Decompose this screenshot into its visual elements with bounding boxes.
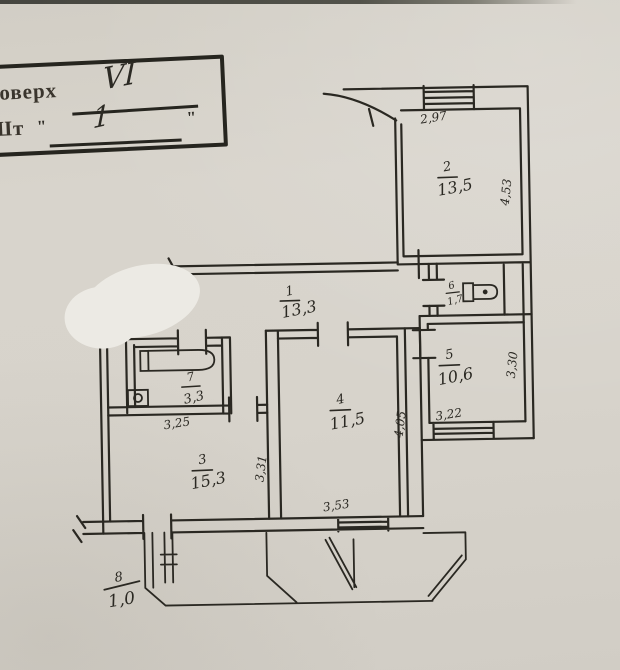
room-label-room2: 2 13,5: [432, 156, 474, 200]
svg-text:15,3: 15,3: [189, 468, 228, 493]
scanned-floor-plan-page: оверх VI Шт " 1 ": [0, 0, 620, 670]
svg-text:2: 2: [441, 159, 453, 175]
dim-room3-right: 3,31: [252, 455, 269, 483]
room-label-bathroom: 7 3,3: [177, 368, 205, 408]
dim-room3-top: 3,25: [162, 414, 191, 432]
svg-text:1: 1: [284, 283, 295, 299]
dimension-labels: 2,97 4,53 3,22 3,30 3,53 4,05 3,25 3,31: [157, 107, 523, 517]
sink-icon: [128, 390, 148, 406]
room-label-wc: 6 1,7: [442, 279, 465, 308]
floor-plan-svg: 1 13,3 2 13,5 3 15,3 4 11,5: [0, 0, 620, 670]
room-label-room3: 3 15,3: [185, 449, 227, 493]
svg-text:4: 4: [334, 392, 346, 408]
svg-text:5: 5: [444, 347, 455, 363]
balcony-structures: [144, 527, 466, 606]
svg-text:10,6: 10,6: [436, 364, 475, 389]
svg-text:3: 3: [197, 452, 208, 468]
svg-text:7: 7: [185, 369, 196, 384]
dim-room5-right: 3,30: [504, 351, 521, 379]
toilet-icon: [463, 283, 497, 302]
room-label-room5: 5 10,6: [432, 344, 474, 389]
svg-text:6: 6: [447, 280, 457, 292]
room-label-corridor: 1 13,3: [276, 280, 318, 322]
balcony-curve-wall: [324, 92, 396, 121]
dim-room5-bottom: 3,22: [434, 405, 463, 423]
svg-text:1,0: 1,0: [107, 588, 137, 612]
dim-room4-bottom: 3,53: [322, 496, 351, 514]
dim-room2-right: 4,53: [498, 178, 515, 207]
svg-text:11,5: 11,5: [328, 408, 367, 433]
svg-text:1,7: 1,7: [446, 293, 465, 308]
room-label-balcony: 8 1,0: [102, 567, 144, 612]
svg-text:8: 8: [114, 570, 125, 586]
dim-room2-top: 2,97: [418, 109, 448, 127]
room-label-room4: 4 11,5: [324, 389, 366, 434]
